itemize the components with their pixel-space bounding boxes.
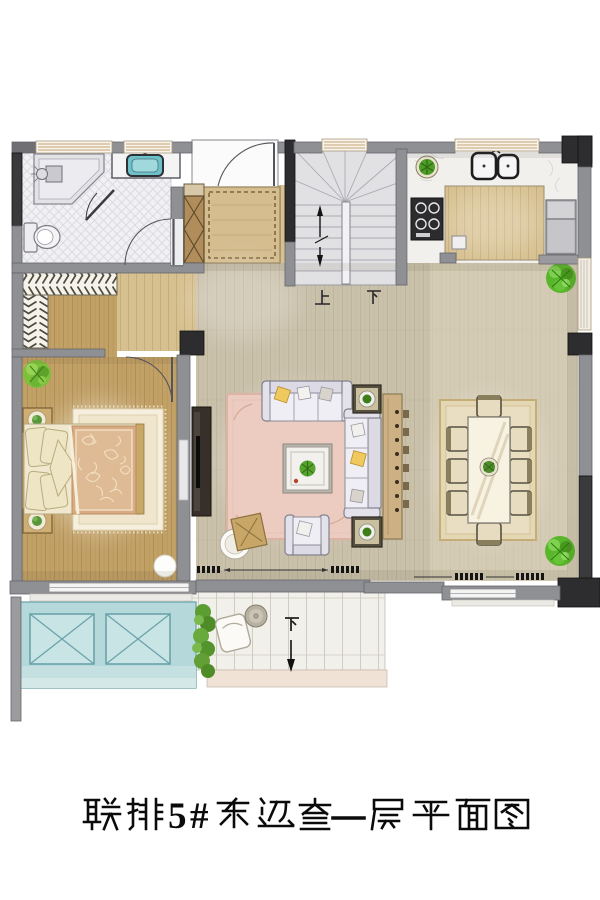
svg-text:5: 5 [168, 796, 187, 837]
svg-text:#: # [190, 796, 209, 837]
